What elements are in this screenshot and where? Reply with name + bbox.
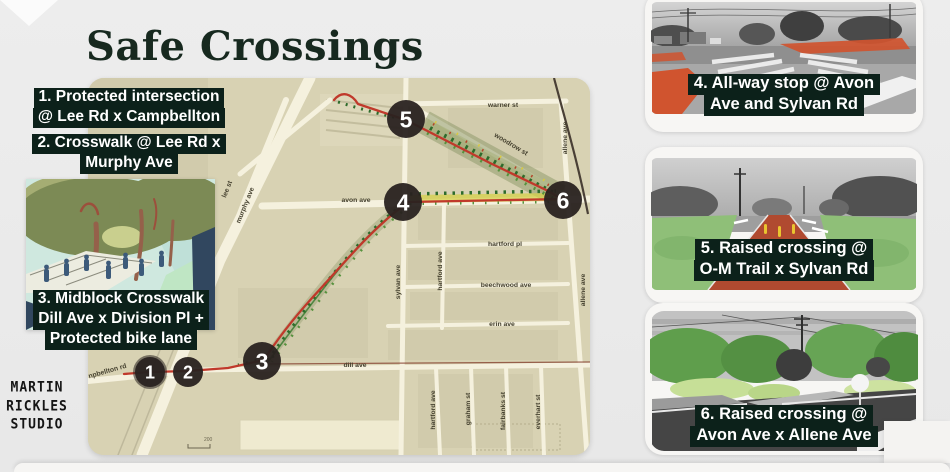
marker-1: 1 — [133, 355, 167, 389]
street-label-avon-ave: avon ave — [341, 197, 370, 204]
label-line: Protected bike lane — [45, 330, 197, 350]
callout-card-5: 5. Raised crossing @ O-M Trail x Sylvan … — [645, 147, 923, 303]
svg-text:5: 5 — [400, 106, 413, 132]
annotation-label-1: 1. Protected intersection @ Lee Rd x Cam… — [22, 88, 236, 128]
marker-3: 3 — [243, 342, 281, 380]
label-line: Murphy Ave — [80, 154, 178, 174]
annotation-label-2: 2. Crosswalk @ Lee Rd x Murphy Ave — [22, 134, 236, 174]
logo-line: RICKLES — [4, 398, 70, 417]
street-label-hartford-ave-lower: hartford ave — [430, 390, 437, 430]
street-label-warner-st: warner st — [487, 102, 519, 109]
marker-6: 6 — [544, 181, 582, 219]
street-label-fairbanks-st: fairbanks st — [500, 391, 507, 430]
marker-4: 4 — [384, 183, 422, 221]
label-line: 2. Crosswalk @ Lee Rd x — [32, 134, 225, 154]
callout-card-4: 4. All-way stop @ Avon Ave and Sylvan Rd — [645, 0, 923, 132]
svg-text:6: 6 — [557, 187, 570, 213]
logo-line: STUDIO — [4, 416, 70, 435]
street-label-dill-ave: dill ave — [343, 362, 366, 369]
svg-text:200: 200 — [204, 437, 213, 443]
corner-white-patch — [884, 421, 950, 463]
annotation-label-3: 3. Midblock Crosswalk Dill Ave x Divisio… — [18, 290, 224, 350]
street-label-allene-ave-lower: allene ave — [580, 274, 587, 307]
callout-caption-6: 6. Raised crossing @ Avon Ave x Allene A… — [645, 405, 923, 447]
studio-logo: MARTIN RICKLES STUDIO — [4, 379, 70, 435]
street-label-hartford-ave-upper: hartford ave — [437, 251, 444, 291]
callout-caption-4: 4. All-way stop @ Avon Ave and Sylvan Rd — [645, 74, 923, 116]
callout-card-6: 6. Raised crossing @ Avon Ave x Allene A… — [645, 303, 923, 455]
street-label-sylvan-ave: sylvan ave — [395, 265, 402, 300]
caption-line: 4. All-way stop @ Avon — [688, 74, 880, 95]
street-label-erin-ave: erin ave — [489, 321, 515, 328]
marker-2: 2 — [173, 357, 203, 387]
caption-line: Avon Ave x Allene Ave — [690, 426, 877, 447]
label-line: 3. Midblock Crosswalk — [33, 290, 209, 310]
svg-text:3: 3 — [256, 348, 269, 374]
caption-line: O-M Trail x Sylvan Rd — [694, 260, 875, 281]
svg-text:2: 2 — [183, 362, 193, 382]
marker-5: 5 — [387, 100, 425, 138]
logo-line: MARTIN — [4, 379, 70, 398]
street-label-allene-ave-upper: allene ave — [562, 122, 569, 155]
street-label-everhart-st: everhart st — [535, 394, 542, 429]
page-title: Safe Crossings — [86, 23, 424, 70]
street-label-graham-st: graham st — [465, 392, 472, 425]
svg-text:1: 1 — [145, 362, 155, 382]
caption-line: Ave and Sylvan Rd — [704, 95, 864, 116]
street-label-beechwood-ave: beechwood ave — [481, 282, 532, 289]
next-slide-edge — [14, 463, 950, 472]
label-line: @ Lee Rd x Campbellton — [33, 108, 225, 128]
label-line: Dill Ave x Division Pl + — [33, 310, 209, 330]
corner-chevron-icon — [0, 0, 58, 26]
caption-line: 5. Raised crossing @ — [695, 239, 873, 260]
street-label-hartford-pl: hartford pl — [488, 241, 522, 248]
caption-line: 6. Raised crossing @ — [695, 405, 873, 426]
svg-text:4: 4 — [397, 189, 410, 215]
callout-caption-5: 5. Raised crossing @ O-M Trail x Sylvan … — [645, 239, 923, 281]
label-line: 1. Protected intersection — [34, 88, 225, 108]
